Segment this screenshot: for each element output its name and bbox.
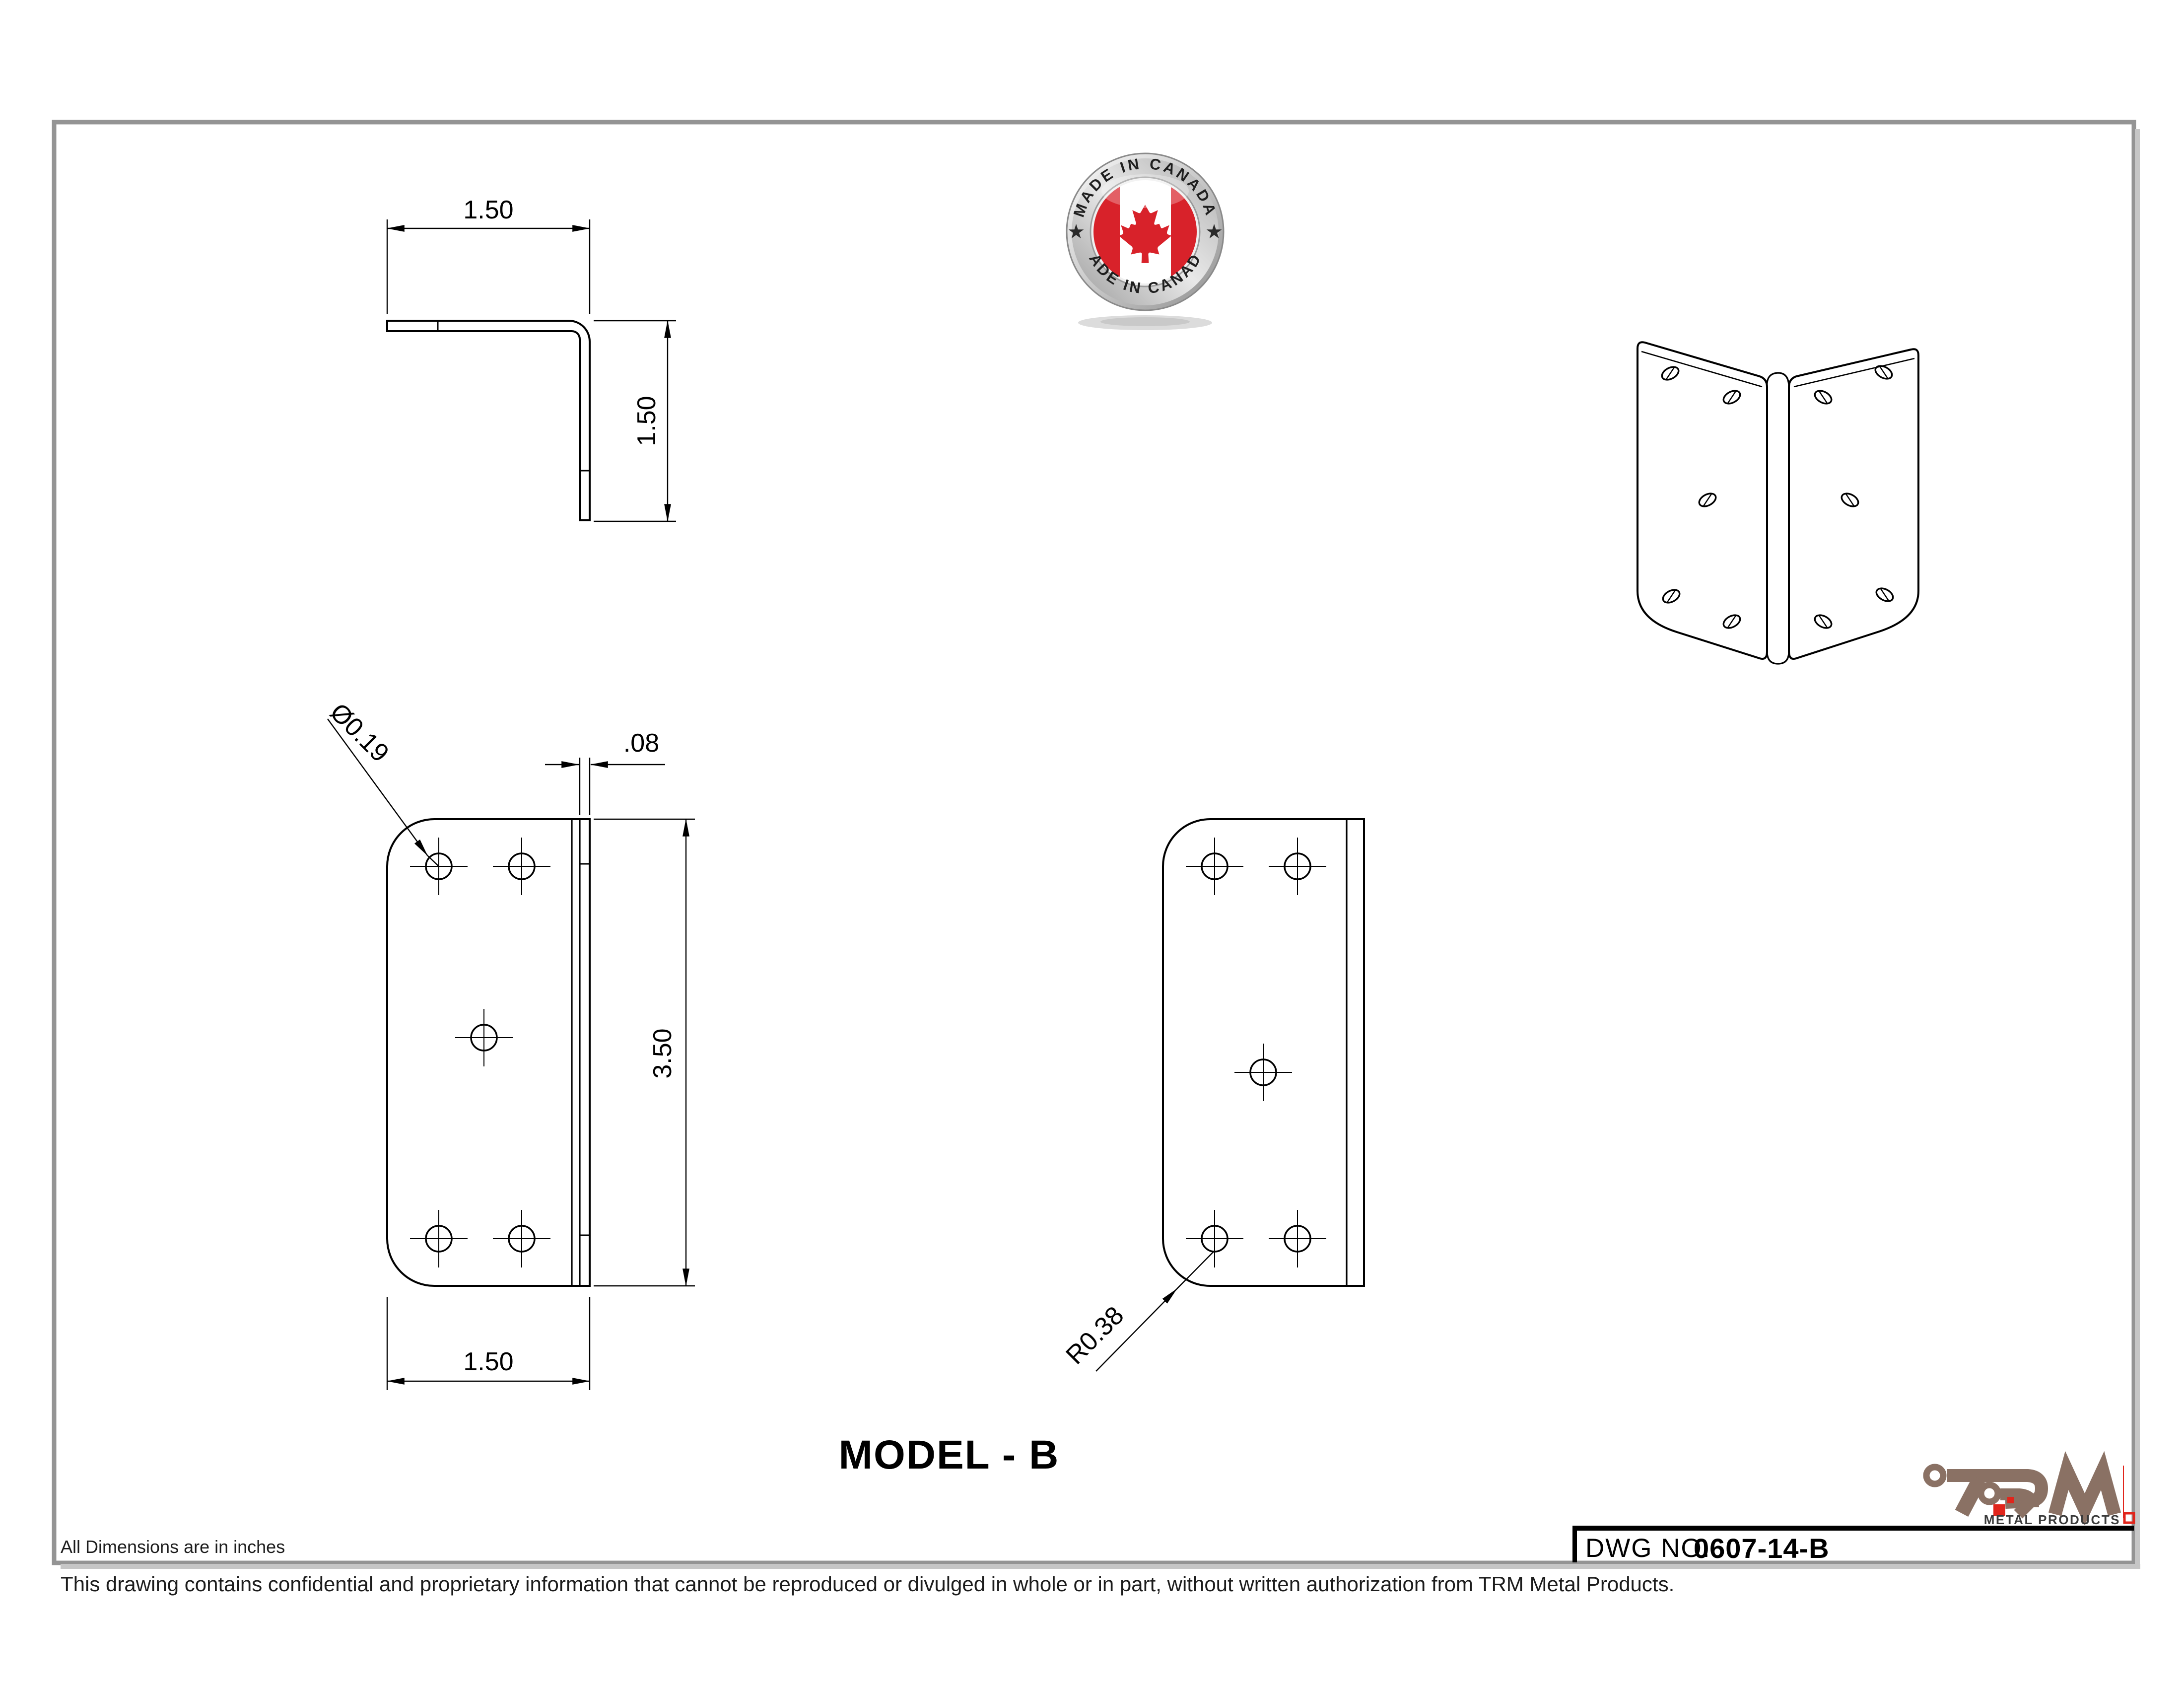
- hole-dia-label: Ø0.19: [324, 698, 394, 768]
- front-view: Ø0.19 .08 3.50 1.50: [324, 698, 695, 1390]
- front-view-outline: [387, 819, 590, 1286]
- front-view-holes: [426, 853, 535, 1252]
- top-view-outline: [387, 321, 590, 520]
- dwg-no-label: DWG NO.: [1585, 1534, 1710, 1563]
- page-title: MODEL - B: [839, 1432, 1060, 1477]
- trm-logo: METAL PRODUCTS: [1926, 1466, 2134, 1527]
- title-block: DWG NO. 0607-14-B: [1572, 1526, 2134, 1564]
- side-view-holes: [1202, 853, 1310, 1252]
- drawing-sheet: 1.50 1.50 Ø: [0, 0, 2184, 1688]
- iso-thickness-edge: [1641, 352, 1762, 387]
- title-block-top-line: [1572, 1526, 2134, 1531]
- border-shadow-right: [2135, 129, 2140, 1568]
- badge-shadow-core: [1100, 317, 1190, 326]
- iso-bend-bottom: [1767, 651, 1789, 664]
- top-view: 1.50 1.50: [387, 196, 676, 521]
- confidentiality-note: This drawing contains confidential and p…: [61, 1572, 1674, 1596]
- side-view: R0.38: [1060, 819, 1364, 1371]
- dim-top-width: [387, 219, 590, 314]
- dim-thickness: [545, 758, 665, 815]
- made-in-canada-badge: MADE IN CANADA MADE IN CANADA ★ ★: [0, 0, 1224, 330]
- thickness-label: .08: [623, 729, 659, 758]
- dwg-no-value: 0607-14-B: [1694, 1533, 1830, 1564]
- corner-radius-label: R0.38: [1060, 1301, 1129, 1370]
- iso-left-plate: [1638, 342, 1767, 659]
- dim-front-height: [594, 819, 695, 1286]
- isometric-view: [1638, 342, 1918, 664]
- center-marks: [1186, 838, 1326, 1267]
- iso-right-plate: [1789, 349, 1918, 659]
- front-height-label: 3.50: [648, 1028, 677, 1078]
- dim-top-width-label: 1.50: [463, 196, 513, 224]
- dim-top-height-label: 1.50: [632, 396, 661, 446]
- border-shadow-bottom: [61, 1564, 2140, 1569]
- star-icon: ★: [1067, 221, 1085, 243]
- front-width-label: 1.50: [463, 1347, 513, 1376]
- title-block-left-line: [1572, 1526, 1577, 1562]
- iso-holes-left: [1660, 364, 1742, 631]
- units-note: All Dimensions are in inches: [61, 1537, 285, 1557]
- badge-bottom-arc-text: MADE IN CANADA: [0, 0, 1205, 297]
- star-icon: ★: [1205, 221, 1223, 243]
- center-marks: [410, 838, 550, 1267]
- iso-bend-top: [1767, 373, 1789, 387]
- logo-subtitle: METAL PRODUCTS: [1984, 1512, 2120, 1527]
- iso-holes-right: [1813, 363, 1895, 631]
- trm-letters: [1926, 1467, 2115, 1514]
